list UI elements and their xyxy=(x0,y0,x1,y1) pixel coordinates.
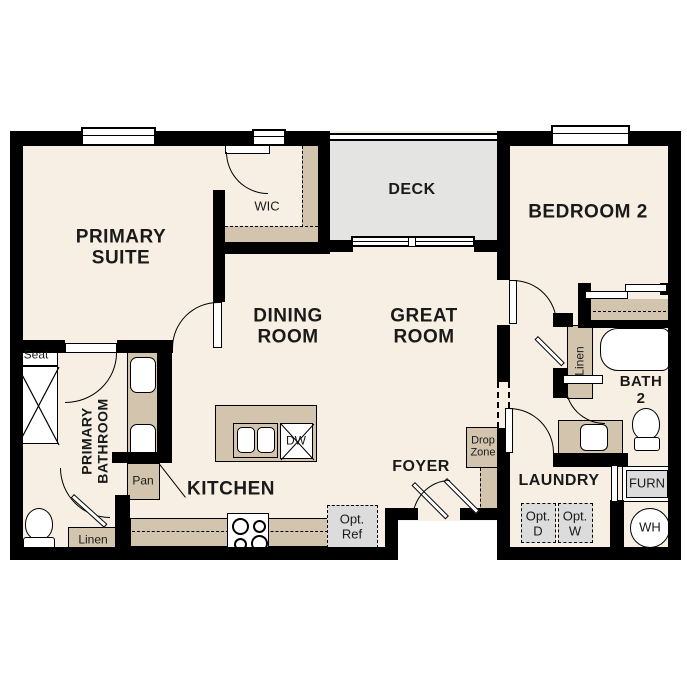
room-label-laundry: LAUNDRY xyxy=(518,472,599,490)
slider-center-mark xyxy=(408,237,416,247)
door-leaf xyxy=(563,375,603,384)
wall xyxy=(460,508,510,520)
optional-washer-label: Opt.W xyxy=(563,509,588,538)
optional-refrigerator-label: Opt.Ref xyxy=(340,512,365,541)
window xyxy=(252,129,286,146)
drop-zone-label: DropZone xyxy=(470,435,495,460)
wall xyxy=(318,131,330,254)
seat-label: Seat xyxy=(24,348,49,361)
linen-label: Linen xyxy=(78,533,107,546)
room-label-wic: WIC xyxy=(254,200,279,215)
closet-slider xyxy=(585,291,628,299)
shower xyxy=(17,366,58,444)
room-label-deck: DECK xyxy=(388,181,435,199)
burner xyxy=(253,520,266,533)
deck-railing xyxy=(330,133,497,141)
wall xyxy=(585,320,668,328)
burner xyxy=(232,518,249,535)
optional-dryer-label: Opt.D xyxy=(526,509,551,538)
wall xyxy=(158,348,172,455)
room-label-foyer: FOYER xyxy=(392,458,450,476)
window xyxy=(81,127,156,146)
wic-shelf-bottom xyxy=(225,226,318,242)
toilet xyxy=(632,408,660,440)
island-sink xyxy=(237,427,255,453)
room-label-bedroom2: BEDROOM 2 xyxy=(528,201,648,222)
closet-rod-dashed xyxy=(593,311,666,312)
foyer-coat-strip xyxy=(480,468,497,512)
wall xyxy=(213,242,330,254)
door-leaf xyxy=(65,343,117,353)
wall xyxy=(10,547,387,560)
wall xyxy=(610,500,624,547)
wall xyxy=(497,325,510,382)
wall xyxy=(330,240,353,252)
wall xyxy=(474,240,497,252)
wall xyxy=(213,254,225,302)
pantry-label: Pan xyxy=(132,474,153,487)
room-label-dining-room: DININGROOM xyxy=(253,306,323,349)
wall xyxy=(497,146,510,280)
room-label-primary-bathroom: PRIMARYBATHROOM xyxy=(79,398,110,483)
dishwasher-label: DW xyxy=(286,434,306,447)
toilet-tank xyxy=(634,437,660,451)
furnace-label: FURN xyxy=(629,477,665,492)
floor-plan: PRIMARYSUITE WIC DECK BEDROOM 2 DININGRO… xyxy=(0,0,687,687)
room-label-bath2: BATH2 xyxy=(620,374,663,408)
island-sink xyxy=(257,427,275,453)
wall xyxy=(112,452,172,463)
room-label-primary-suite: PRIMARYSUITE xyxy=(76,227,166,270)
linen-label: Linen xyxy=(573,346,586,375)
sink xyxy=(580,424,608,451)
toilet xyxy=(25,508,53,540)
door-leaf xyxy=(611,465,618,502)
water-heater-label: WH xyxy=(639,521,661,536)
wall xyxy=(497,547,681,560)
room-label-kitchen: KITCHEN xyxy=(187,478,275,499)
bathtub xyxy=(600,328,670,371)
wall xyxy=(115,495,130,547)
wall xyxy=(668,131,681,560)
window xyxy=(551,125,630,146)
sink xyxy=(130,357,156,393)
room-label-great-room: GREATROOM xyxy=(390,306,458,349)
closet-slider xyxy=(625,284,667,292)
entry-porch xyxy=(398,521,497,560)
